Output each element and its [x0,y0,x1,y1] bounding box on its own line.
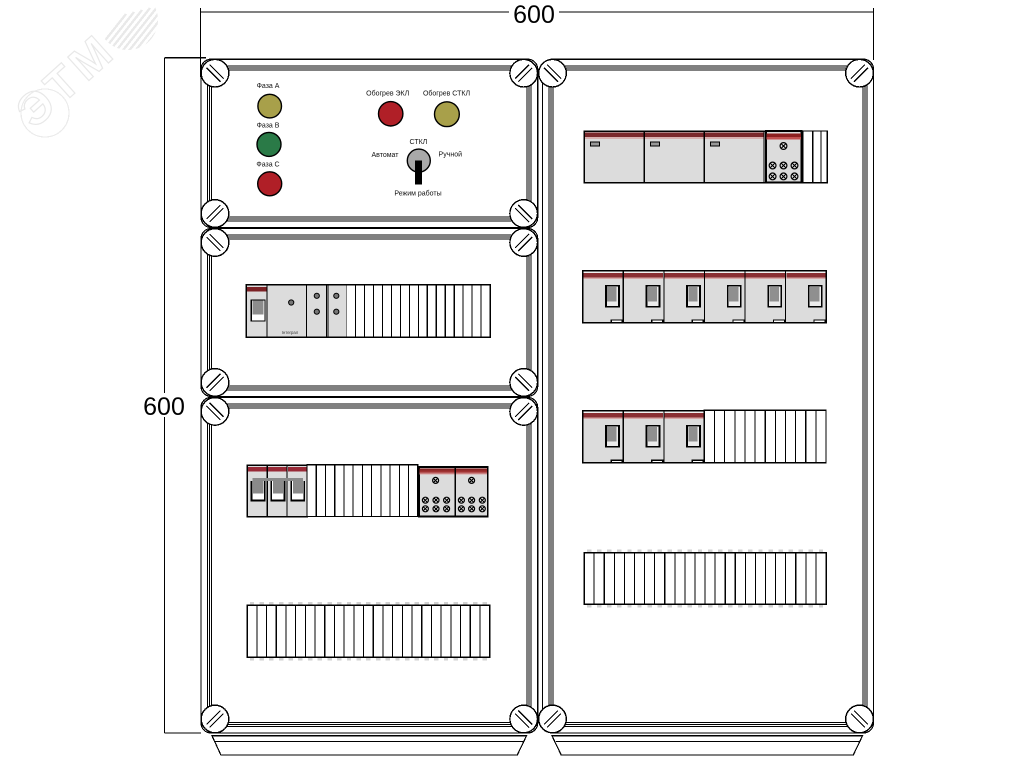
svg-text:Автомат: Автомат [371,152,399,159]
svg-text:Інтеграл: Інтеграл [282,330,299,335]
svg-text:Ручной: Ручной [439,150,463,158]
svg-text:Фаза С: Фаза С [256,162,279,169]
svg-text:600: 600 [143,393,185,421]
svg-text:Режим работы: Режим работы [394,189,441,197]
svg-text:Фаза В: Фаза В [257,122,280,129]
svg-text:Обогрев ЭКЛ: Обогрев ЭКЛ [366,89,409,97]
svg-text:Фаза А: Фаза А [257,83,280,90]
svg-text:600: 600 [513,1,555,29]
svg-text:СТКЛ: СТКЛ [410,139,428,146]
svg-text:Обогрев СТКЛ: Обогрев СТКЛ [423,89,471,97]
